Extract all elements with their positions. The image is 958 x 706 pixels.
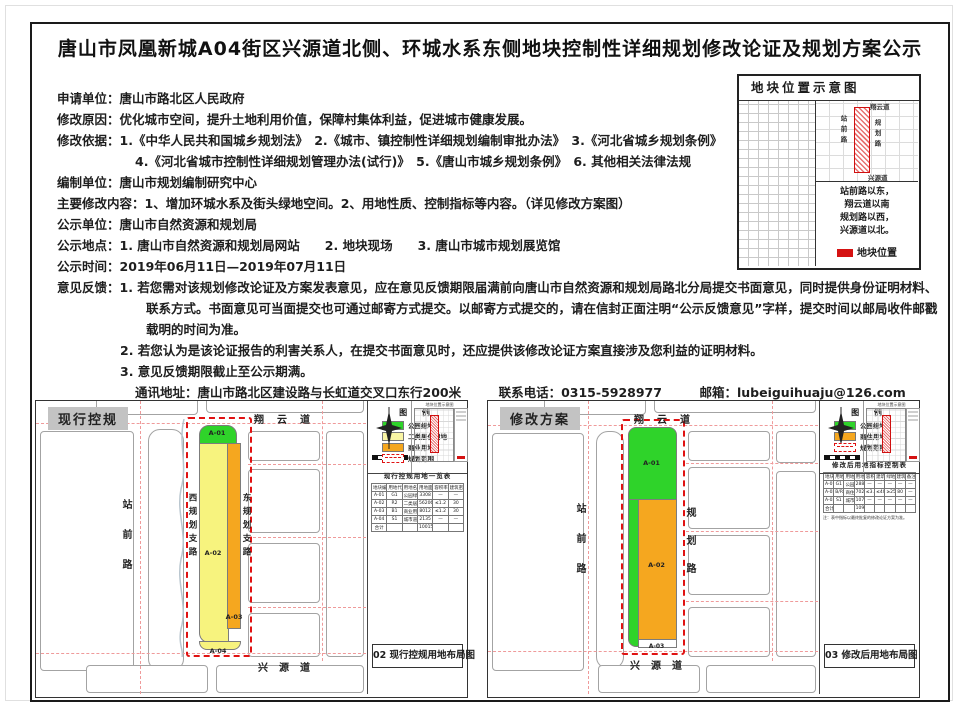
road-label: 翔云道 [870, 101, 890, 111]
table-cell: 8012 [417, 508, 432, 516]
street-block [776, 431, 816, 463]
land-use-table: 地块编号用地代码用地名称用地面积(㎡)容积率建筑密度绿地率建筑高度备注A-01G… [823, 472, 916, 513]
table-row: A-02R2二类居住用地56206≤1.230 [372, 500, 464, 508]
table-cell [402, 524, 417, 532]
table-cell: 70261 [854, 489, 864, 497]
minimap-text-placeholder [456, 415, 466, 417]
location-description: 站前路以东， 翔云道以南 规划路以西， 兴源道以北。 [816, 186, 918, 238]
street-block [688, 535, 770, 595]
map-badge: 现行控规 [48, 407, 128, 430]
street-block [688, 607, 770, 657]
minimap-notes [906, 408, 920, 462]
table-cell [905, 505, 915, 513]
road-centerline [686, 531, 818, 532]
table-row: A-03B1商业用地8012≤1.230 [372, 508, 464, 516]
current-plan-sidebar: 地块位置示意图 图 例 公园绿 [367, 401, 467, 694]
minimap-notes [454, 408, 468, 462]
table-header-cell: 用地面积(㎡) [417, 484, 432, 492]
table-cell: ≤1.2 [433, 508, 448, 516]
parcel-label: A-03 [638, 643, 675, 650]
page-title: 唐山市凤凰新城A04街区兴源道北侧、环城水系东侧地块控制性详细规划修改论证及规划… [32, 34, 948, 61]
current-plan-panel: 现行控规 [35, 400, 468, 698]
table-cell: 30 [448, 508, 463, 516]
minimap-text-placeholder [456, 419, 466, 421]
road-label: 西规划支路 [186, 493, 198, 561]
table-cell: — [864, 497, 874, 505]
table-cell: 商业用地 [402, 508, 417, 516]
table-cell [864, 505, 874, 513]
road-label: 站前路 [118, 499, 133, 589]
table-cell: 30 [448, 500, 463, 508]
minimap-site-area [882, 415, 891, 453]
table-cell: ≥25 [885, 489, 895, 497]
table-cell: 城市道路用地 [402, 516, 417, 524]
map-badge: 修改方案 [500, 407, 580, 430]
modified-plan-panel: 修改方案 [487, 400, 920, 698]
table-cell: 28878 [854, 481, 864, 489]
road-label: 东规划支路 [240, 493, 252, 561]
body-line: 载明的时间为准。 [32, 319, 944, 340]
minimap-text-placeholder [456, 411, 466, 413]
table-cell: — [864, 481, 874, 489]
road-label: 兴源道 [630, 657, 693, 672]
sidebar-top: 地块位置示意图 [368, 401, 467, 474]
table-header-row: 地块编号用地代码用地名称用地面积(㎡)容积率建筑密度(%) [372, 484, 464, 492]
table-cell: G1 [834, 481, 844, 489]
table-cell: A-02 [824, 489, 834, 497]
table-cell: B/R [834, 489, 844, 497]
table-cell [387, 524, 402, 532]
table-cell: S1 [834, 497, 844, 505]
body-line: 联系方式。书面意见可当面提交也可通过邮寄方式提交。以邮寄方式提交的，请在信封正面… [32, 298, 944, 319]
table-cell: — [875, 481, 885, 489]
table-cell [834, 505, 844, 513]
road-centerline [140, 401, 141, 694]
table-header-cell: 地块编号 [372, 484, 387, 492]
table-cell: — [885, 497, 895, 505]
table-row: 合计100153 [372, 524, 464, 532]
minimap: 地块位置示意图 [412, 401, 467, 473]
table-cell: 公园绿地 [844, 481, 854, 489]
table-row: A-02B/R商住用地70261≤3.0≤40≥2580— [824, 489, 916, 497]
table-cell: — [905, 489, 915, 497]
street-block [248, 543, 320, 603]
table-header-cell: 容积率 [433, 484, 448, 492]
street-block [688, 431, 770, 461]
table-cell: — [875, 497, 885, 505]
city-street-map [739, 101, 816, 266]
road-centerline [772, 401, 773, 661]
parcel-label: A-04 [202, 647, 234, 655]
body-line: 3. 意见反馈期限截止至公示期满。 [32, 361, 944, 382]
legend-swatch-boundary [834, 443, 856, 452]
table-cell: ≤3.0 [864, 489, 874, 497]
table-cell: A-03 [824, 497, 834, 505]
site-location-label: 地块位置 [857, 248, 897, 259]
table-header-cell: 用地名称 [402, 484, 417, 492]
table-row: A-03S1城市道路用地10700————— [824, 497, 916, 505]
parcel-label: A-03 [220, 613, 248, 621]
table-cell: ≤1.2 [433, 500, 448, 508]
table-cell: A-04 [372, 516, 387, 524]
minimap-title: 地块位置示意图 [864, 401, 919, 408]
table-row: A-04S1城市道路用地2135—— [372, 516, 464, 524]
planning-boundary [621, 419, 685, 655]
table-cell: — [433, 516, 448, 524]
table-header-cell: 用地代码 [387, 484, 402, 492]
modified-plan-map: 修改方案 [488, 401, 818, 694]
location-panel-title: 地块位置示意图 [739, 76, 919, 101]
sidebar-top: 地块位置示意图 [820, 401, 919, 474]
table-cell: 2135 [417, 516, 432, 524]
table-cell: 公园绿地 [402, 492, 417, 500]
table-cell: 城市道路用地 [844, 497, 854, 505]
location-description-line: 站前路以东， [816, 186, 918, 199]
table-cell [895, 505, 905, 513]
table-cell: 合计 [824, 505, 834, 513]
document-page: 唐山市凤凰新城A04街区兴源道北侧、环城水系东侧地块控制性详细规划修改论证及规划… [0, 0, 958, 706]
site-location-swatch [837, 249, 853, 257]
road-label: 规划路 [682, 507, 697, 591]
table-cell: — [905, 481, 915, 489]
road-centerline [322, 401, 323, 661]
table-cell: — [448, 516, 463, 524]
table-cell: — [895, 481, 905, 489]
road-centerline [248, 607, 366, 608]
table-cell: 3308 [417, 492, 432, 500]
table-cell: ≤40 [875, 489, 885, 497]
minimap: 地块位置示意图 [864, 401, 919, 473]
table-cell: A-01 [824, 481, 834, 489]
location-description-line: 翔云道以南 [816, 199, 918, 212]
table-cell: — [433, 492, 448, 500]
table-cell: 10700 [854, 497, 864, 505]
location-description-line: 兴源道以北。 [816, 225, 918, 238]
north-arrow-icon [376, 405, 402, 451]
table-cell: B1 [387, 508, 402, 516]
road-centerline [686, 463, 818, 464]
road-centerline [248, 464, 366, 465]
minimap-site-area [430, 415, 439, 453]
location-description-line: 规划路以西， [816, 212, 918, 225]
scale-bar [824, 455, 860, 460]
street-block [776, 471, 816, 657]
road-centerline [248, 537, 366, 538]
current-plan-map: 现行控规 [36, 401, 366, 694]
table-cell: A-03 [372, 508, 387, 516]
legend-swatch-boundary [382, 454, 404, 463]
document-frame: 唐山市凤凰新城A04街区兴源道北侧、环城水系东侧地块控制性详细规划修改论证及规划… [30, 22, 950, 702]
road-label: 兴源道 [868, 172, 888, 182]
road-label: 翔云道 [254, 411, 323, 426]
minimap-title: 地块位置示意图 [412, 401, 467, 408]
street-block [248, 613, 320, 657]
minimap-text-placeholder [908, 415, 918, 417]
road-centerline [588, 401, 589, 694]
road-label: 站前路 [572, 503, 587, 593]
table-cell: — [905, 497, 915, 505]
street-block [86, 665, 208, 693]
table-cell: S1 [387, 516, 402, 524]
table-cell [844, 505, 854, 513]
parcel-label: A-01 [199, 429, 235, 437]
table-cell: A-01 [372, 492, 387, 500]
table-cell [433, 524, 448, 532]
location-inset-map: 翔云道 站前路 规划路 兴源道 [816, 101, 918, 182]
minimap-map [414, 408, 454, 462]
table-header-cell: 建筑密度(%) [448, 484, 463, 492]
modified-plan-sidebar: 地块位置示意图 图 例 公园绿 [819, 401, 919, 694]
compass-cell [820, 401, 864, 473]
table-cell [885, 505, 895, 513]
body-line: 意见反馈：1. 若您需对该规划修改论证及方案发表意见，应在意见反馈期限届满前向唐… [32, 277, 944, 298]
table-cell: 合计 [372, 524, 387, 532]
map-caption: 03 修改后用地布局图 [824, 644, 915, 668]
land-use-table: 地块编号用地代码用地名称用地面积(㎡)容积率建筑密度(%)A-01G1公园绿地3… [371, 483, 464, 532]
road-label: 规划路 [872, 119, 882, 151]
site-hatched-area [854, 107, 870, 173]
minimap-text-placeholder [908, 411, 918, 413]
body-line: 2. 若您认为是该论证报告的利害关系人，在提交书面意见时，还应提供该修改论证方案… [32, 340, 944, 361]
table-cell: 80 [895, 489, 905, 497]
map-caption: 02 现行控规用地布局图 [372, 644, 463, 668]
location-legend: 地块位置 [816, 244, 918, 259]
parcel-label: A-02 [199, 549, 227, 557]
street-block [248, 431, 320, 461]
minimap-text-placeholder [908, 419, 918, 421]
table-cell: — [895, 497, 905, 505]
table-cell: 二类居住用地 [402, 500, 417, 508]
road-label: 兴源道 [258, 659, 321, 674]
table-cell: A-02 [372, 500, 387, 508]
table-cell: 56206 [417, 500, 432, 508]
street-block [688, 467, 770, 529]
road-centerline [686, 601, 818, 602]
street-block [706, 665, 816, 693]
street-block [596, 431, 624, 669]
table-cell [875, 505, 885, 513]
table-cell: — [885, 481, 895, 489]
table-row: A-01G1公园绿地28878————— [824, 481, 916, 489]
table-note: 注：表中指标以最终批复的修改论证方案为准。 [823, 515, 916, 520]
table-cell: 100153 [417, 524, 432, 532]
road-label: 站前路 [838, 115, 848, 147]
street-block [492, 433, 584, 671]
table-cell: 109839 [854, 505, 864, 513]
table-cell [448, 524, 463, 532]
table-cell: 商住用地 [844, 489, 854, 497]
minimap-legend-swatch [457, 456, 465, 459]
table-row: A-01G1公园绿地3308—— [372, 492, 464, 500]
location-panel: 地块位置示意图 翔云道 站前路 规划路 兴源道 站前路以东， 翔云道以南 规划路… [737, 74, 921, 270]
road-label: 翔云道 [634, 411, 703, 426]
table-cell: G1 [387, 492, 402, 500]
parcel-label: A-02 [638, 561, 675, 569]
table-row: 合计109839 [824, 505, 916, 513]
minimap-legend-swatch [909, 456, 917, 459]
parcel-label: A-01 [628, 459, 675, 467]
street-block [248, 469, 320, 533]
table-cell: — [448, 492, 463, 500]
minimap-map [866, 408, 906, 462]
table-cell: R2 [387, 500, 402, 508]
